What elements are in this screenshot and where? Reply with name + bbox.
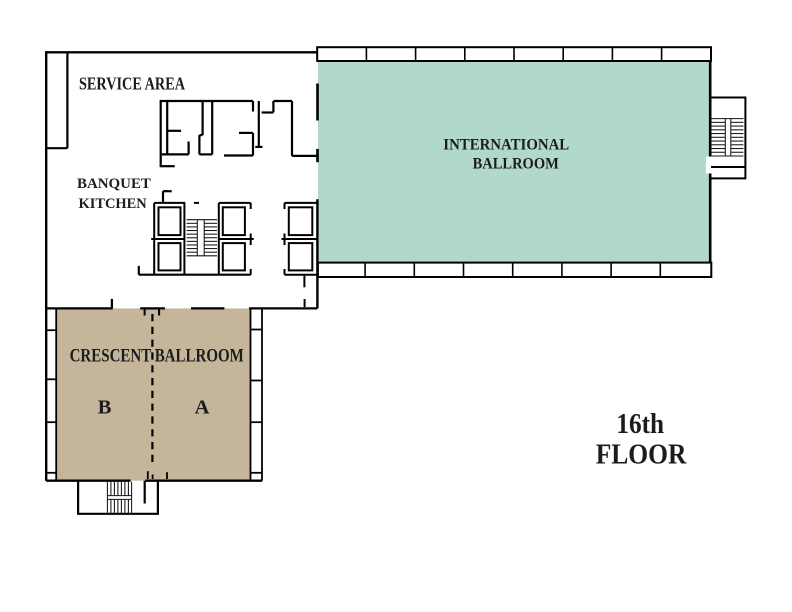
svg-text:B: B	[98, 396, 112, 418]
svg-text:INTERNATIONAL: INTERNATIONAL	[443, 137, 569, 154]
svg-text:CRESCENT BALLROOM: CRESCENT BALLROOM	[70, 347, 244, 367]
svg-text:KITCHEN: KITCHEN	[79, 196, 148, 212]
svg-text:A: A	[195, 396, 210, 418]
svg-text:SERVICE AREA: SERVICE AREA	[79, 74, 185, 94]
svg-text:BANQUET: BANQUET	[77, 176, 151, 192]
svg-text:BALLROOM: BALLROOM	[473, 156, 559, 173]
svg-text:FLOOR: FLOOR	[596, 439, 687, 470]
svg-text:16th: 16th	[616, 409, 664, 440]
